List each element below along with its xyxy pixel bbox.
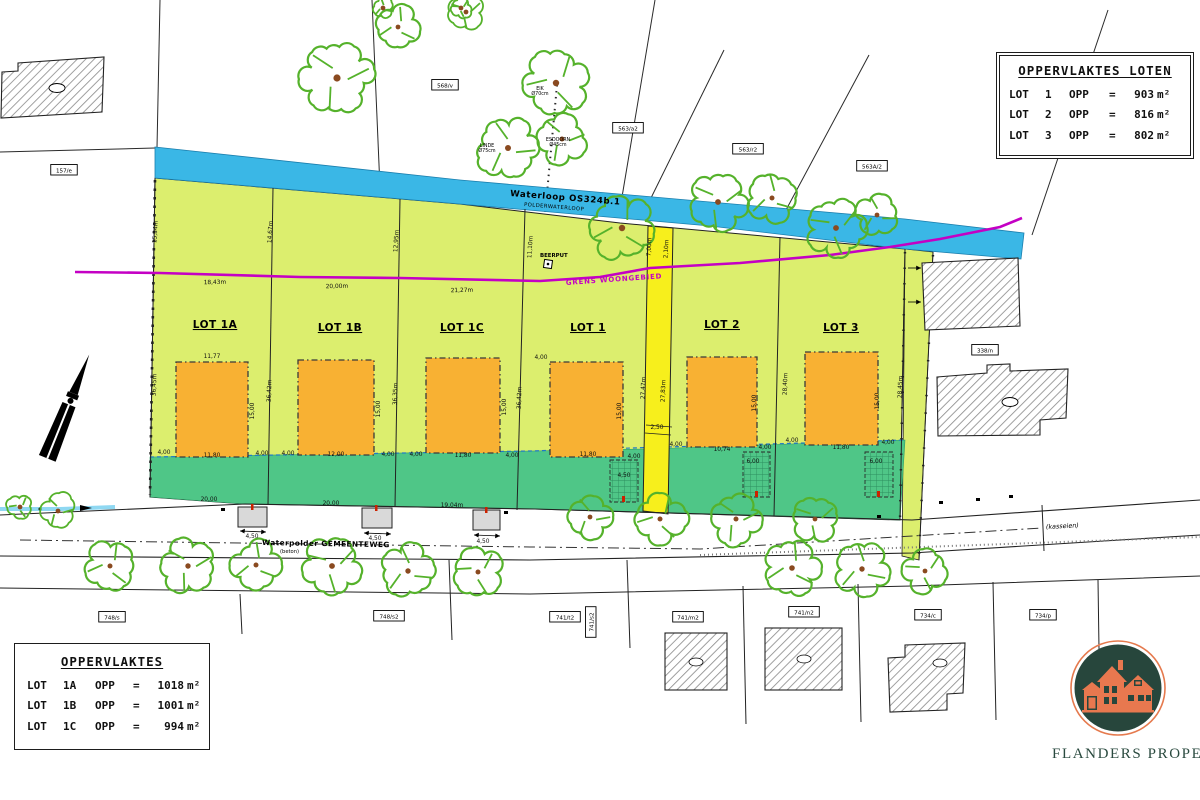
svg-text:741/n2: 741/n2 [794,611,814,617]
dimension-label: 36,45m [152,373,159,396]
footprint-lot-1a [176,362,248,457]
dimension-label: 11,77 [204,354,221,360]
dimension-label: 11,80 [580,452,597,458]
beerput-symbol [543,259,552,268]
dimension-label: 2,50 [650,425,663,431]
footprint-lot-1c [426,358,500,453]
dimension-label: 20,00 [201,497,218,503]
dimension-label: 4,00 [669,442,682,448]
dimension-label: 4,50 [245,534,258,540]
dimension-label: 4,00 [785,438,798,444]
driveway-pads [238,507,500,530]
svg-text:748/s: 748/s [104,616,120,622]
dimension-label: 4,00 [758,445,771,451]
dimension-label: 15,00 [617,402,623,419]
dimension-label: 4,50 [617,473,630,479]
site-plan-page: 18,43m20,00m21,27m15,34m14,67m12,95m11,1… [0,0,1200,800]
north-arrow-icon [39,351,98,462]
table-row: LOT1B OPP= 1001m² [27,696,197,716]
lot-label: LOT 1A [193,319,238,331]
dimension-label: 4,00 [627,454,640,460]
parcel-label: 741/s2 [586,607,597,638]
parcel-label: 563/a2 [613,123,644,134]
existing-building-topleft [1,57,104,118]
dimension-label: 6,00 [746,459,759,465]
footprint-lot-1b [298,360,374,455]
dimension-label: 4,00 [409,452,422,458]
dimension-label: 7,00m [647,237,654,256]
dimension-label: 36,35m [393,382,400,405]
svg-text:338/n: 338/n [977,349,994,355]
tree-icon [85,541,134,590]
footprint-lot-3 [805,352,878,445]
dimension-label: 4,00 [505,453,518,459]
svg-text:741/t2: 741/t2 [556,616,574,622]
parcel-label: 734/p [1030,610,1057,621]
road-sublabel: (beton) [280,549,299,555]
tree-icon [376,4,421,47]
svg-text:741/m2: 741/m2 [677,616,699,622]
table-row: LOT3 OPP= 802m² [1009,126,1181,146]
parcel-label: 734/c [915,610,942,621]
dimension-label: 12,00 [328,452,345,458]
lot-label: LOT 1B [318,322,362,334]
dimension-label: 15,00 [875,392,881,409]
bottom-buildings [665,628,965,712]
dimension-label: 11,80 [455,453,472,459]
beerput-label: BEERPUT [540,253,568,259]
parcel-label: 741/t2 [550,612,581,623]
dimension-label: 4,00 [157,450,170,456]
areas-table-lots-123: OPPERVLAKTES LOTEN LOT1 OPP= 903m² LOT2 … [996,52,1194,159]
table-row: LOT1A OPP= 1018m² [27,676,197,696]
road-centerline [20,528,1042,549]
parcel-label: 748/s2 [374,611,405,622]
dimension-label: 19,04m [441,503,464,509]
dimension-label: 6,00 [869,459,882,465]
dimension-label: 15,00 [752,394,758,411]
table-row: LOT2 OPP= 816m² [1009,105,1181,125]
tree-icon [298,43,375,112]
footprint-lot-1 [550,362,623,457]
dimension-label: 15,00 [502,398,508,415]
dimension-label: 21,27m [451,288,474,294]
parcel-label: 563A/2 [857,161,888,172]
dimension-label: 27,47m [641,376,648,399]
tree-icon [454,547,503,595]
dimension-label: 4,00 [881,440,894,446]
dimension-label: 15,00 [376,400,382,417]
table-row: LOT1C OPP= 994m² [27,717,197,737]
areas-table-title: OPPERVLAKTES [27,654,197,669]
dimension-label: 20,00 [323,501,340,507]
dimension-label: 4,50 [476,539,489,545]
dimension-label: 27,83m [661,379,668,402]
dimension-label: 11,80 [204,453,221,459]
parcel-label: 157/e [51,165,78,176]
lot-label: LOT 1C [440,322,484,334]
svg-text:563/a2: 563/a2 [618,127,638,133]
dimension-label: 10,74 [714,447,731,453]
dimension-label: 4,00 [534,355,547,361]
lot-label: LOT 2 [704,319,740,331]
dimension-label: 4,00 [281,451,294,457]
table-row: LOT1 OPP= 903m² [1009,85,1181,105]
parcel-label: 568/v [432,80,459,91]
dimension-label: 36,42m [517,386,524,409]
tree-icon [522,51,589,115]
tree-icon [160,538,213,593]
svg-text:748/s2: 748/s2 [379,615,398,621]
footprint-lot-2 [687,357,757,447]
svg-text:157/e: 157/e [56,169,73,175]
dimension-label: 2,10m [664,239,671,258]
tree-icon [382,542,436,596]
areas-table-title: OPPERVLAKTES LOTEN [1009,63,1181,78]
dimension-label: 4,00 [381,452,394,458]
areas-table-lots-abc: OPPERVLAKTES LOT1A OPP= 1018m² LOT1B OPP… [14,643,210,750]
parcel-label: 563/r2 [733,144,764,155]
tree-label: EIKØ70cm [531,86,549,97]
tree-icon [836,543,891,597]
road-label: Waterpolder GEMEENTEWEG [262,538,390,549]
parcel-label: 748/s [99,612,126,623]
dimension-label: 4,00 [255,451,268,457]
brand-name: FLANDERS PROPERTI [1052,746,1200,763]
tree-icon [373,0,393,18]
parcel-label: 741/m2 [673,612,704,623]
dimension-label: 28,40m [783,372,790,395]
dimension-label: 20,00m [326,284,349,290]
parcel-label: 338/n [972,345,999,356]
road-surface-label: (kasseien) [1046,521,1079,531]
svg-text:741/s2: 741/s2 [590,612,596,631]
company-logo [1058,638,1182,748]
svg-text:734/p: 734/p [1035,614,1052,620]
svg-text:563/r2: 563/r2 [739,148,757,154]
building-symbol [49,84,65,93]
dimension-label: 15,00 [250,402,256,419]
lot-label: LOT 1 [570,322,606,334]
svg-text:563A/2: 563A/2 [862,165,882,171]
tree-label: ESDOORNØ45cm [546,137,571,148]
svg-text:568/v: 568/v [437,84,454,90]
dimension-label: 36,42m [267,379,274,402]
tree-icon [451,0,472,18]
dimension-label: 11,80 [833,445,850,451]
svg-text:734/c: 734/c [920,614,936,620]
parcel-label: 741/n2 [789,607,820,618]
dimension-label: 28,45m [898,375,905,398]
dimension-label: 18,43m [204,280,227,286]
lot-label: LOT 3 [823,322,859,334]
tree-label: LINDEØ75cm [478,143,496,154]
